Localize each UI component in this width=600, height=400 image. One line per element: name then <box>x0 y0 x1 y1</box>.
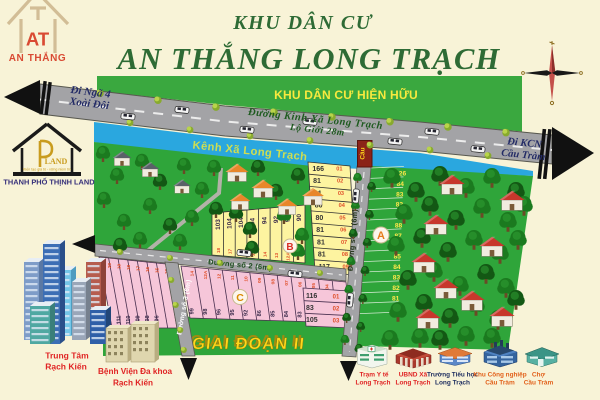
svg-text:02: 02 <box>337 179 343 185</box>
svg-text:Rạch Kiến: Rạch Kiến <box>113 379 153 388</box>
svg-text:11: 11 <box>230 275 236 280</box>
svg-text:96: 96 <box>216 309 222 315</box>
svg-text:THANH PHỐ THỊNH LAND: THANH PHỐ THỊNH LAND <box>3 177 95 187</box>
svg-text:18: 18 <box>126 265 132 271</box>
svg-text:09: 09 <box>257 277 263 283</box>
svg-text:04: 04 <box>325 284 331 290</box>
svg-text:90: 90 <box>296 214 303 222</box>
svg-text:01: 01 <box>333 295 340 301</box>
svg-text:104: 104 <box>226 218 233 229</box>
svg-text:B: B <box>286 242 293 253</box>
svg-text:14: 14 <box>189 271 195 277</box>
svg-text:Long Trạch: Long Trạch <box>395 380 430 387</box>
svg-text:05: 05 <box>339 215 345 221</box>
svg-text:99: 99 <box>189 308 195 314</box>
svg-text:A: A <box>377 230 385 242</box>
svg-text:Cầu Tràm: Cầu Tràm <box>524 378 554 387</box>
svg-text:GIAI ĐOẠN II: GIAI ĐOẠN II <box>191 334 306 353</box>
svg-text:Rạch Kiến: Rạch Kiến <box>45 362 87 372</box>
svg-text:Trường Tiểu học: Trường Tiểu học <box>427 371 478 379</box>
svg-text:AT: AT <box>26 29 50 50</box>
svg-text:84: 84 <box>284 310 290 317</box>
svg-text:83: 83 <box>306 305 314 312</box>
svg-text:Long Trạch: Long Trạch <box>435 380 470 387</box>
svg-text:84: 84 <box>393 264 401 271</box>
svg-text:AN THẮNG LONG TRẠCH: AN THẮNG LONG TRẠCH <box>116 41 501 76</box>
svg-text:95: 95 <box>230 309 236 315</box>
svg-text:16: 16 <box>145 267 151 273</box>
svg-text:Trạm Y tế: Trạm Y tế <box>359 371 388 379</box>
svg-text:Long Trạch: Long Trạch <box>355 380 390 387</box>
svg-text:KHU DÂN CƯ: KHU DÂN CƯ <box>232 10 372 34</box>
svg-text:07: 07 <box>341 240 347 246</box>
svg-text:LAND: LAND <box>45 157 68 166</box>
svg-text:02: 02 <box>333 307 340 313</box>
svg-text:03: 03 <box>338 191 344 197</box>
svg-text:86: 86 <box>257 310 263 316</box>
svg-text:C: C <box>236 292 244 304</box>
svg-text:81: 81 <box>316 227 324 234</box>
svg-text:Trung Tâm: Trung Tâm <box>45 351 89 361</box>
svg-text:13: 13 <box>274 253 280 259</box>
svg-text:103: 103 <box>215 219 222 230</box>
svg-text:04: 04 <box>339 203 346 209</box>
svg-text:Cầu Tràm: Cầu Tràm <box>485 378 515 387</box>
svg-text:Chợ: Chợ <box>532 372 546 379</box>
svg-text:94: 94 <box>261 217 268 225</box>
svg-text:18: 18 <box>216 248 222 254</box>
svg-text:111: 111 <box>117 316 123 325</box>
svg-text:12A: 12A <box>203 270 209 279</box>
svg-text:17: 17 <box>227 249 233 255</box>
svg-text:98: 98 <box>203 309 209 315</box>
svg-text:03: 03 <box>333 319 340 325</box>
svg-text:17: 17 <box>136 266 142 272</box>
svg-text:81: 81 <box>318 252 326 259</box>
svg-text:82: 82 <box>392 285 400 292</box>
svg-text:05: 05 <box>311 283 317 289</box>
svg-text:20: 20 <box>107 263 113 269</box>
svg-text:15: 15 <box>154 268 160 274</box>
svg-text:Bệnh Viện Đa khoa: Bệnh Viện Đa khoa <box>98 367 172 376</box>
svg-text:01: 01 <box>336 167 342 173</box>
svg-text:81: 81 <box>392 295 400 302</box>
svg-text:UBND Xã: UBND Xã <box>399 372 428 379</box>
svg-text:Cầu: Cầu <box>358 147 367 159</box>
svg-text:06: 06 <box>340 228 346 234</box>
svg-text:88: 88 <box>395 222 403 229</box>
svg-text:81: 81 <box>313 178 321 185</box>
svg-text:83: 83 <box>298 311 304 317</box>
svg-text:110: 110 <box>126 315 132 324</box>
svg-text:85: 85 <box>271 311 277 317</box>
svg-text:92: 92 <box>243 310 249 316</box>
svg-text:07: 07 <box>284 280 290 286</box>
svg-text:08: 08 <box>271 279 277 285</box>
svg-text:105: 105 <box>306 317 318 324</box>
svg-text:83: 83 <box>396 191 404 198</box>
svg-text:Kiến tạo giá trị - vững niềm t: Kiến tạo giá trị - vững niềm tin <box>23 168 71 172</box>
svg-text:81: 81 <box>317 239 325 246</box>
svg-text:116: 116 <box>306 293 317 300</box>
svg-text:80: 80 <box>316 215 324 222</box>
svg-text:166: 166 <box>312 166 324 173</box>
svg-text:10: 10 <box>243 276 249 282</box>
svg-text:12: 12 <box>216 273 222 279</box>
svg-text:AN THẮNG: AN THẮNG <box>9 51 67 64</box>
svg-text:Khu Công nghiệp: Khu Công nghiệp <box>473 372 526 379</box>
svg-text:14: 14 <box>262 252 268 258</box>
svg-text:KHU DÂN CƯ HIỆN HỮU: KHU DÂN CƯ HIỆN HỮU <box>274 87 418 102</box>
svg-text:06: 06 <box>298 281 304 287</box>
svg-text:19: 19 <box>117 264 123 270</box>
